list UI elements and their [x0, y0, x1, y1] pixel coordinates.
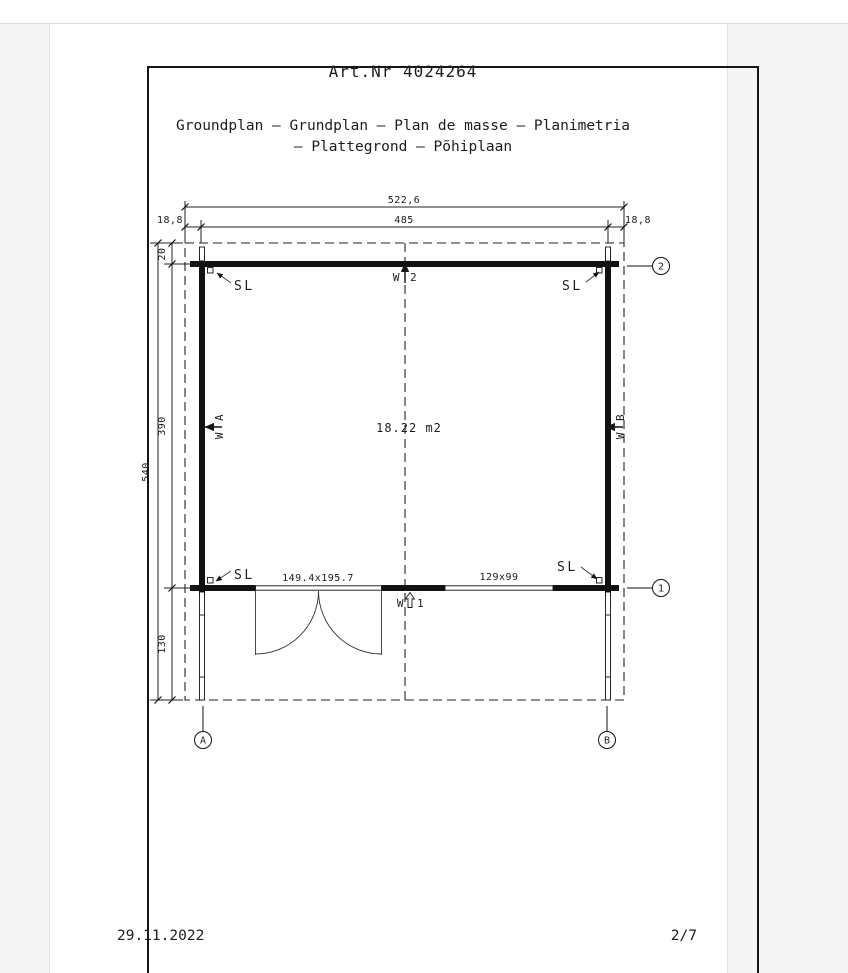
- dim-door: 149.4x195.7: [282, 573, 354, 584]
- dim-total-depth: 540: [141, 462, 152, 482]
- terrace-post-left: [200, 592, 205, 700]
- svg-text:B: B: [614, 414, 627, 421]
- right-wall: [605, 255, 611, 596]
- left-wall-cap: [200, 247, 205, 261]
- sl-label-top-right: SL: [562, 279, 583, 294]
- footer-page-indicator: 2/7: [620, 928, 697, 944]
- floor-plan-drawing: 522,6 485 18,8 18,8 540 20 390 130 149.4…: [0, 0, 848, 973]
- footer-date: 29.11.2022: [117, 928, 204, 944]
- dim-inner-width: 485: [394, 215, 414, 226]
- svg-text:B: B: [604, 736, 610, 747]
- svg-text:1: 1: [417, 597, 424, 610]
- overhang-outline: [185, 243, 624, 700]
- wall-label-bottom: W 1: [397, 593, 424, 611]
- dim-terrace-depth: 130: [157, 634, 168, 654]
- svg-text:2: 2: [410, 271, 417, 284]
- room-area-label: 18.22 m2: [376, 421, 442, 435]
- dim-overhang-right: 18,8: [625, 215, 651, 226]
- svg-text:2: 2: [658, 262, 664, 273]
- dim-window: 129x99: [479, 572, 518, 583]
- wall-label-left: W A: [205, 414, 226, 439]
- axis-labels: 2 1 A B: [200, 262, 664, 747]
- svg-text:A: A: [200, 736, 206, 747]
- door-swing: [256, 591, 382, 655]
- dim-overhang-left: 18,8: [157, 215, 183, 226]
- right-wall-cap: [606, 247, 611, 261]
- svg-text:W: W: [213, 432, 226, 439]
- dim-total-width: 522,6: [388, 195, 421, 206]
- svg-text:A: A: [213, 414, 226, 421]
- svg-text:W: W: [614, 432, 627, 439]
- axis-markers: [195, 258, 670, 749]
- svg-text:1: 1: [658, 584, 664, 595]
- svg-text:W: W: [397, 597, 404, 610]
- left-wall: [199, 255, 205, 596]
- dim-room-depth: 390: [157, 416, 168, 436]
- sl-label-top-left: SL: [234, 279, 255, 294]
- terrace-post-right: [606, 592, 611, 700]
- sl-label-bottom-right: SL: [557, 560, 578, 575]
- door-opening: [256, 586, 382, 590]
- svg-text:W: W: [393, 271, 400, 284]
- sl-label-bottom-left: SL: [234, 568, 255, 583]
- bottom-wall-mid-segment: [382, 585, 446, 591]
- pdf-viewer: Art.Nr 4024264 Groundplan – Grundplan – …: [0, 0, 848, 973]
- dim-top-overhang: 20: [157, 247, 168, 260]
- window-opening: [445, 586, 553, 590]
